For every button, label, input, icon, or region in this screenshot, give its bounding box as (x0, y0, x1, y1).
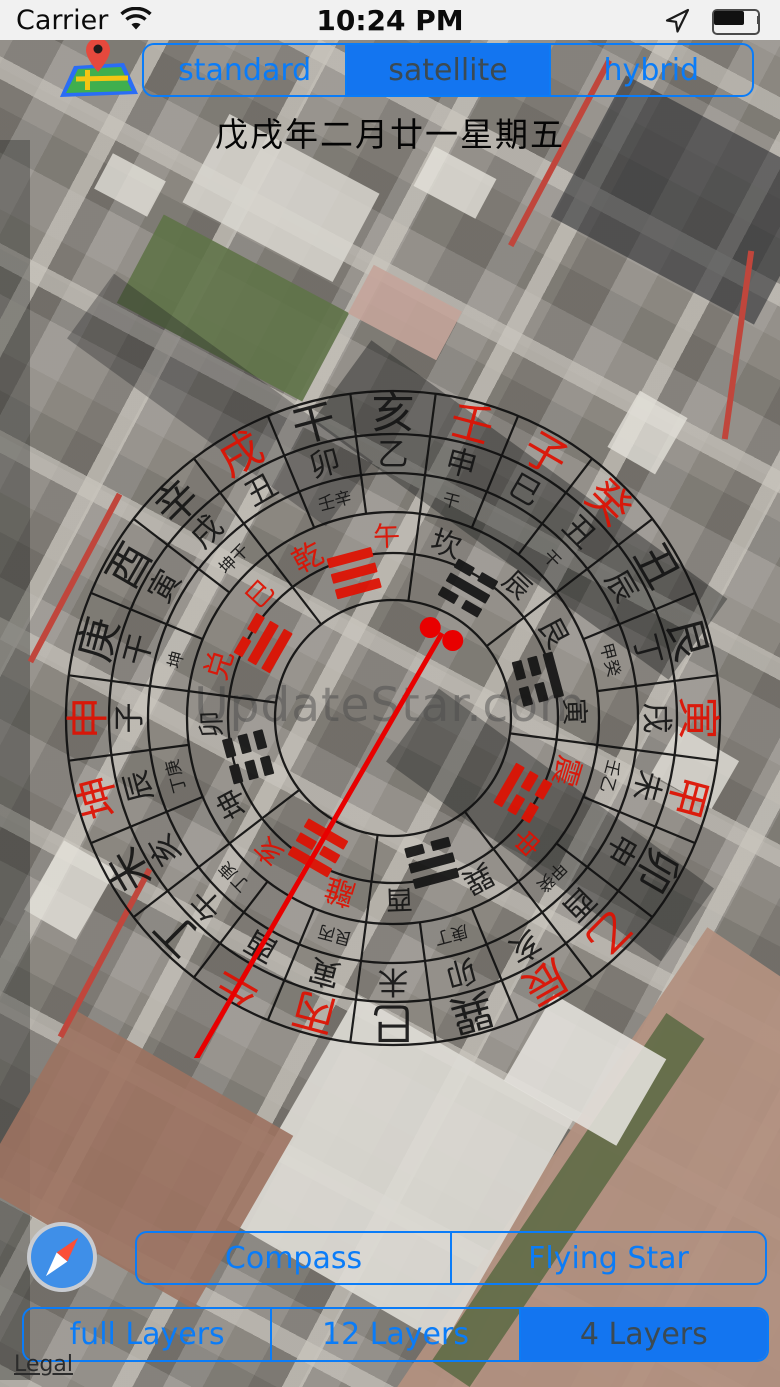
map-building (94, 153, 166, 216)
svg-text:坤: 坤 (165, 649, 189, 671)
map-shadow (0, 140, 30, 1380)
svg-text:庚丁: 庚丁 (432, 920, 470, 948)
svg-text:巳: 巳 (372, 997, 415, 1047)
svg-text:壬辛: 壬辛 (316, 488, 354, 516)
layers-control: full Layers12 Layers4 Layers (22, 1307, 769, 1362)
status-time: 10:24 PM (0, 4, 780, 37)
layers-option-12-layers[interactable]: 12 Layers (270, 1309, 518, 1360)
status-bar: Carrier 10:24 PM (0, 0, 780, 40)
map-type-control: standardsatellitehybrid (142, 43, 754, 97)
map-app-icon[interactable] (52, 36, 144, 102)
svg-text:甲癸: 甲癸 (595, 641, 623, 679)
svg-text:艮: 艮 (530, 612, 575, 655)
svg-text:寅: 寅 (558, 698, 590, 726)
mode-buttons: Compass Flying Star (135, 1231, 767, 1285)
svg-text:午: 午 (373, 521, 401, 553)
svg-text:亥: 亥 (372, 389, 415, 439)
lunar-date-banner: 戊戌年二月廿一星期五 (0, 108, 780, 156)
svg-text:坤: 坤 (211, 782, 256, 825)
svg-text:酉: 酉 (385, 883, 413, 915)
battery-icon (712, 9, 764, 31)
svg-text:卯: 卯 (196, 710, 228, 738)
svg-text:申: 申 (64, 697, 114, 740)
svg-text:干: 干 (538, 547, 564, 573)
location-arrow-icon (664, 8, 690, 34)
luopan-compass[interactable]: 子癸丑艮寅甲卯乙辰巽巳丙午丁未坤申庚酉辛戌干亥壬巳丑辰丁戌未申酉亥卯未寅酉午亥辰… (53, 378, 733, 1058)
svg-text:子: 子 (112, 703, 148, 734)
compass-button[interactable]: Compass (137, 1233, 450, 1283)
svg-text:艮丙: 艮丙 (316, 920, 354, 948)
map-type-satellite[interactable]: satellite (345, 45, 548, 95)
layers-option-4-layers[interactable]: 4 Layers (519, 1309, 767, 1360)
legal-link[interactable]: Legal (14, 1352, 73, 1377)
svg-text:未: 未 (378, 963, 409, 999)
map-building (414, 146, 497, 219)
svg-text:亥: 亥 (249, 830, 290, 871)
svg-text:乾: 乾 (287, 536, 330, 581)
svg-text:巽: 巽 (457, 855, 500, 900)
map-park (117, 215, 349, 402)
svg-text:乙: 乙 (378, 437, 409, 473)
svg-text:巳: 巳 (240, 574, 281, 615)
svg-text:干: 干 (440, 490, 462, 514)
map-type-standard[interactable]: standard (144, 45, 345, 95)
flying-star-button[interactable]: Flying Star (450, 1233, 765, 1283)
app-screen: UpdateStar.com 子癸丑艮寅甲卯乙辰巽巳丙午丁未坤申庚酉辛戌干亥壬巳… (0, 0, 780, 1387)
map-building (348, 265, 462, 361)
svg-text:辰: 辰 (496, 565, 537, 606)
svg-text:寅: 寅 (672, 697, 722, 740)
svg-text:申: 申 (505, 821, 546, 862)
svg-text:丁庚: 丁庚 (163, 757, 191, 795)
svg-text:戌: 戌 (638, 703, 674, 734)
svg-text:壬乙: 壬乙 (595, 757, 623, 795)
map-type-hybrid[interactable]: hybrid (549, 45, 752, 95)
safari-compass-icon[interactable] (25, 1220, 99, 1294)
